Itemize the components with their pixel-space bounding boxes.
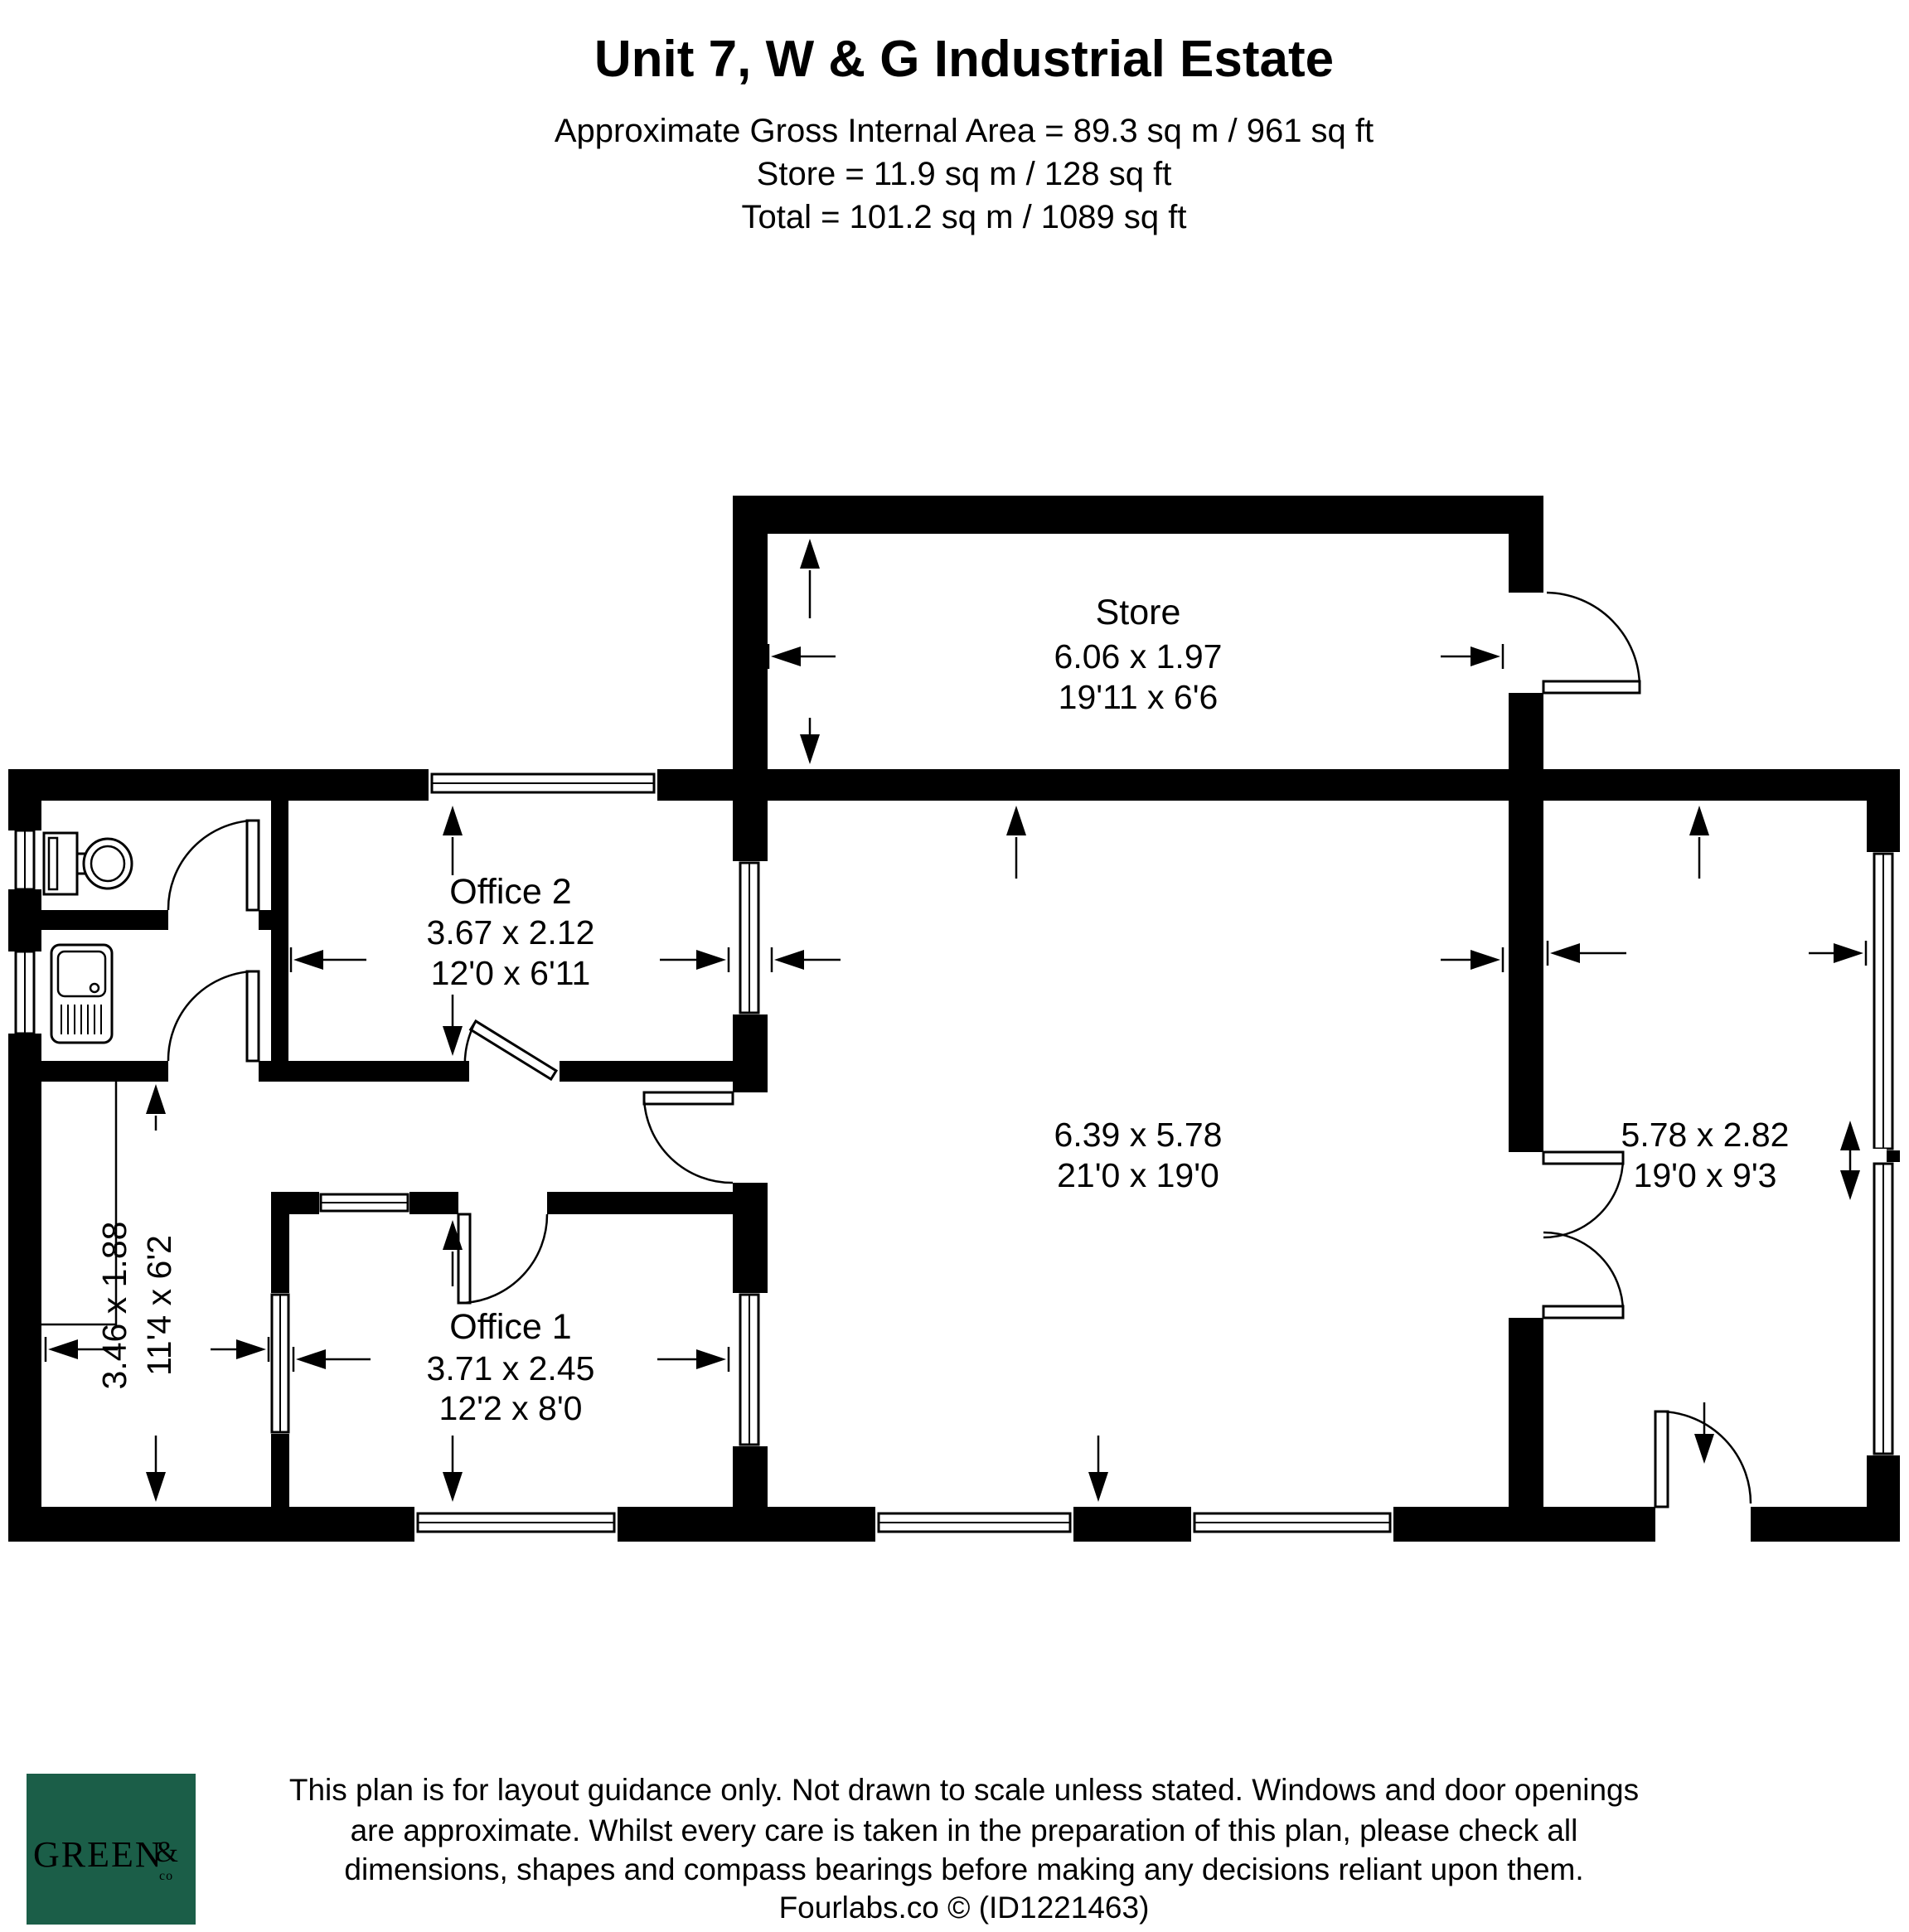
office1-name: Office 1 xyxy=(449,1307,571,1347)
office1-imperial: 12'2 x 8'0 xyxy=(439,1389,583,1427)
wc-door xyxy=(168,821,259,910)
window-left-kitchen xyxy=(8,951,41,1034)
opening-office1-door xyxy=(458,1192,547,1214)
window-right-lower xyxy=(1867,1162,1900,1455)
lobby-warehouse-door xyxy=(644,1092,733,1183)
footer: GREEN & co This plan is for layout guida… xyxy=(27,1773,1639,1925)
warehouse-metric: 6.39 x 5.78 xyxy=(1054,1116,1223,1154)
wall-office2-bottom-right xyxy=(560,1061,733,1082)
floorplan-page: Unit 7, W & G Industrial Estate Approxim… xyxy=(0,0,1909,1932)
opening-lobby-door xyxy=(733,1092,768,1183)
wall-office2-bottom-left xyxy=(259,1061,469,1082)
floorplan-canvas: Unit 7, W & G Industrial Estate Approxim… xyxy=(0,0,1909,1932)
wall-kitchen-bottom xyxy=(8,1061,168,1082)
opening-store-door xyxy=(1509,593,1543,693)
wall-office2-left xyxy=(271,801,288,1061)
wall-store-left xyxy=(733,496,768,769)
window-bottom-warehouse-2 xyxy=(1191,1507,1393,1542)
store-external-door xyxy=(1543,593,1640,693)
left-room-metric: 3.46 x 1.88 xyxy=(95,1222,133,1390)
disclaimer-line-1: This plan is for layout guidance only. N… xyxy=(289,1773,1639,1807)
logo-word: GREEN xyxy=(33,1834,163,1875)
right-window-mullion xyxy=(1867,1149,1887,1162)
kitchen-door xyxy=(168,971,259,1061)
opening-entrance-door xyxy=(1655,1507,1751,1542)
right-room-imperial: 19'0 x 9'3 xyxy=(1634,1156,1777,1194)
window-divider-office1 xyxy=(733,1293,768,1446)
window-bottom-warehouse-1 xyxy=(875,1507,1073,1542)
sink-unit xyxy=(51,945,112,1043)
right-room-metric: 5.78 x 2.82 xyxy=(1621,1116,1790,1154)
toilet xyxy=(44,833,132,894)
office2-metric: 3.67 x 2.12 xyxy=(427,913,595,951)
floor-plan: Store 6.06 x 1.97 19'11 x 6'6 Office 2 3… xyxy=(8,496,1900,1542)
store-metric: 6.06 x 1.97 xyxy=(1054,637,1223,675)
warehouse-imperial: 21'0 x 19'0 xyxy=(1057,1156,1219,1194)
store-name: Store xyxy=(1096,593,1181,632)
window-office1-left xyxy=(271,1293,289,1434)
store-area-line: Store = 11.9 sq m / 128 sq ft xyxy=(757,156,1172,192)
window-top-office2 xyxy=(429,769,657,801)
opening-wc-door xyxy=(168,910,259,930)
office2-imperial: 12'0 x 6'11 xyxy=(431,954,591,992)
agency-logo: GREEN & co xyxy=(27,1774,196,1925)
walls xyxy=(8,496,1900,1542)
window-bottom-office1 xyxy=(414,1507,618,1542)
store-imperial: 19'11 x 6'6 xyxy=(1059,678,1219,716)
opening-kitchen-door xyxy=(168,1061,259,1082)
wall-wc-bottom-stub xyxy=(259,910,288,930)
office1-door xyxy=(458,1214,547,1303)
disclaimer: This plan is for layout guidance only. N… xyxy=(289,1773,1639,1925)
wall-wc-bottom xyxy=(8,910,168,930)
wall-office1-top-right xyxy=(547,1192,733,1214)
gross-area-line: Approximate Gross Internal Area = 89.3 s… xyxy=(555,113,1374,149)
wall-store-top xyxy=(733,496,1543,534)
opening-double-door xyxy=(1509,1152,1543,1318)
credit-line: Fourlabs.co © (ID1221463) xyxy=(779,1891,1150,1925)
window-left-wc xyxy=(8,830,41,889)
header: Unit 7, W & G Industrial Estate Approxim… xyxy=(555,31,1374,235)
office1-metric: 3.71 x 2.45 xyxy=(427,1349,595,1387)
warehouse-double-door xyxy=(1543,1152,1623,1318)
total-area-line: Total = 101.2 sq m / 1089 sq ft xyxy=(742,199,1187,235)
left-room-imperial: 11'4 x 6'2 xyxy=(140,1235,178,1376)
window-divider-office2 xyxy=(733,861,768,1014)
window-right-upper xyxy=(1867,852,1900,1150)
logo-ampersand: & xyxy=(155,1835,178,1868)
logo-co: co xyxy=(159,1869,173,1883)
disclaimer-line-3: dimensions, shapes and compass bearings … xyxy=(344,1852,1583,1886)
office2-name: Office 2 xyxy=(449,872,571,912)
window-office1-top xyxy=(319,1192,409,1214)
disclaimer-line-2: are approximate. Whilst every care is ta… xyxy=(351,1813,1578,1847)
wall-top xyxy=(8,769,1900,801)
page-title: Unit 7, W & G Industrial Estate xyxy=(594,31,1334,88)
